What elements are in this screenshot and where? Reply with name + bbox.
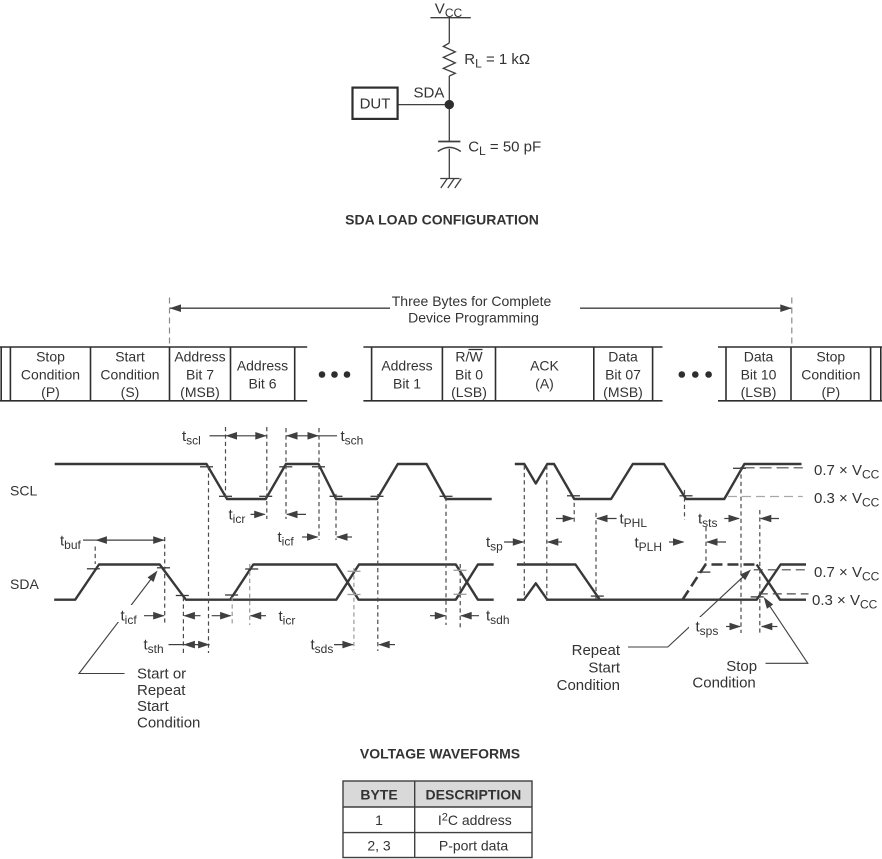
svg-text:1: 1 [375, 812, 383, 828]
svg-text:SDA: SDA [10, 576, 39, 592]
svg-text:Start orRepeatStartCondition: Start orRepeatStartCondition [137, 666, 200, 732]
svg-text:VCC: VCC [435, 1, 463, 21]
svg-text:R/WBit 0(LSB): R/WBit 0(LSB) [451, 349, 487, 401]
svg-text:tscl: tscl [182, 428, 201, 448]
svg-text:RL = 1 kΩ: RL = 1 kΩ [464, 51, 530, 71]
svg-text:SCL: SCL [10, 482, 37, 498]
svg-text:0.3 × VCC: 0.3 × VCC [812, 592, 878, 612]
svg-text:VOLTAGE WAVEFORMS: VOLTAGE WAVEFORMS [360, 746, 520, 762]
svg-text:tbuf: tbuf [60, 533, 82, 553]
svg-text:P-port data: P-port data [439, 837, 508, 853]
svg-text:0.3 × VCC: 0.3 × VCC [814, 490, 880, 510]
svg-text:tsds: tsds [311, 637, 334, 657]
svg-text:tPHL: tPHL [620, 511, 648, 531]
svg-text:Condition: Condition [692, 674, 755, 691]
svg-text:StopCondition(P): StopCondition(P) [801, 349, 860, 401]
svg-text:StartCondition(S): StartCondition(S) [100, 349, 159, 401]
svg-text:tsts: tsts [698, 511, 718, 531]
svg-text:I2C address: I2C address [438, 812, 512, 829]
svg-text:BYTE: BYTE [360, 786, 397, 802]
svg-text:SDA LOAD CONFIGURATION: SDA LOAD CONFIGURATION [345, 212, 539, 228]
svg-text:Stop: Stop [726, 658, 757, 675]
svg-text:DataBit 07(MSB): DataBit 07(MSB) [603, 349, 643, 401]
svg-text:CL = 50 pF: CL = 50 pF [468, 138, 541, 158]
svg-text:ticf: ticf [278, 529, 295, 549]
svg-text:StopCondition(P): StopCondition(P) [21, 349, 80, 401]
svg-text:DataBit 10(LSB): DataBit 10(LSB) [741, 349, 777, 401]
svg-text:DESCRIPTION: DESCRIPTION [426, 786, 522, 802]
svg-text:tsch: tsch [341, 428, 364, 448]
svg-text:ticr: ticr [279, 608, 296, 628]
svg-text:Three Bytes for CompleteDevice: Three Bytes for CompleteDevice Programmi… [392, 293, 552, 326]
svg-text:AddressBit 6: AddressBit 6 [237, 358, 288, 392]
svg-text:AddressBit 7(MSB): AddressBit 7(MSB) [174, 349, 225, 401]
svg-text:tPLH: tPLH [635, 535, 663, 555]
svg-text:RepeatStartCondition: RepeatStartCondition [557, 642, 621, 694]
svg-text:DUT: DUT [360, 96, 391, 113]
svg-text:tsdh: tsdh [486, 608, 510, 628]
svg-text:ticr: ticr [229, 507, 246, 527]
svg-text:AddressBit 1: AddressBit 1 [381, 358, 432, 392]
svg-text:ACK(A): ACK(A) [530, 358, 559, 392]
svg-text:tsp: tsp [486, 534, 503, 554]
svg-text:2, 3: 2, 3 [367, 837, 391, 853]
svg-text:0.7 × VCC: 0.7 × VCC [814, 462, 880, 482]
svg-text:tsth: tsth [144, 637, 164, 657]
svg-text:0.7 × VCC: 0.7 × VCC [814, 564, 880, 584]
svg-text:SDA: SDA [414, 85, 445, 102]
